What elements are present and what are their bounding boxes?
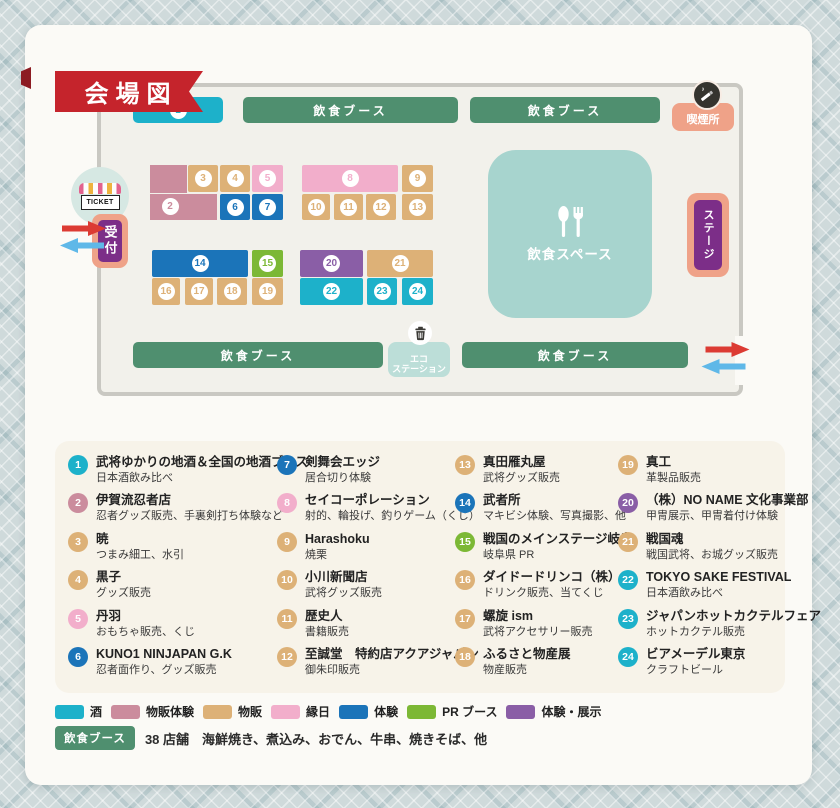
legend-item-name: 剣舞会エッジ <box>305 454 480 470</box>
legend-item-name: Harashoku <box>305 531 480 547</box>
legend-item-number: 9 <box>277 532 297 552</box>
legend-item-desc: 戦国武将、お城グッズ販売 <box>646 548 821 563</box>
legend-item-name: 至誠堂 特約店アクアジャパン <box>305 646 480 662</box>
legend-item-number: 6 <box>68 647 88 667</box>
legend-item-number: 24 <box>618 647 638 667</box>
category-key-label: 物販体験 <box>146 703 194 720</box>
legend-item-number: 21 <box>618 532 638 552</box>
food-booth-bar: 飲食ブース <box>133 342 383 368</box>
legend-item-desc: ホットカクテル販売 <box>646 625 821 640</box>
map-booth-number: 22 <box>323 283 340 300</box>
eco-station-label-line2: ステーション <box>392 364 446 374</box>
legend-item: 13真田雁丸屋武将グッズ販売 <box>455 454 633 492</box>
legend-column-3: 13真田雁丸屋武将グッズ販売14武者所マキビシ体験、写真撮影、他15戦国のメイン… <box>455 454 633 684</box>
map-booth-number: 2 <box>162 198 179 215</box>
legend-item: 24ビアメーデル東京クラフトビール <box>618 646 821 684</box>
dining-space: 飲食スペース <box>488 150 652 318</box>
map-booth-number: 5 <box>259 170 276 187</box>
cigarette-icon <box>692 80 722 110</box>
category-key-swatch <box>111 705 140 719</box>
entrance-arrow-right-icon <box>62 221 106 236</box>
legend-column-1: 1武将ゆかりの地酒＆全国の地酒ブース日本酒飲み比べ2伊賀流忍者店忍者グッズ販売、… <box>68 454 308 684</box>
legend-item-desc: 物産販売 <box>483 663 633 678</box>
legend-item-name: 歴史人 <box>305 608 480 624</box>
legend-item: 11歴史人書籍販売 <box>277 608 480 646</box>
legend-item: 22TOKYO SAKE FESTIVAL日本酒飲み比べ <box>618 569 821 607</box>
legend-item: 23ジャパンホットカクテルフェアホットカクテル販売 <box>618 608 821 646</box>
map-booth-number: 11 <box>340 199 357 216</box>
legend-item-number: 18 <box>455 647 475 667</box>
ticket-label: TICKET <box>81 195 120 210</box>
eco-station-label-line1: エコ <box>410 354 428 364</box>
legend-item-number: 5 <box>68 609 88 629</box>
stage: ステージ <box>687 193 729 277</box>
category-key-label: 体験 <box>374 703 398 720</box>
legend-item-desc: 居合切り体験 <box>305 471 480 486</box>
legend-item-desc: 岐阜県 PR <box>483 548 633 563</box>
legend-item-desc: 武将グッズ販売 <box>483 471 633 486</box>
legend-item-desc: ドリンク販売、当てくじ <box>483 586 633 601</box>
legend-item: 14武者所マキビシ体験、写真撮影、他 <box>455 492 633 530</box>
eco-station: エコ ステーション <box>388 342 450 377</box>
legend-item-desc: クラフトビール <box>646 663 821 678</box>
food-booth-bar-label: 飲食ブース <box>528 102 602 119</box>
map-booth-number: 12 <box>373 199 390 216</box>
legend-item-desc: 書籍販売 <box>305 625 480 640</box>
category-key: 酒物販体験物販縁日体験PR ブース体験・展示 <box>55 703 611 720</box>
spoon-fork-icon <box>553 205 587 239</box>
legend-item-name: （株）NO NAME 文化事業部 <box>646 492 821 508</box>
legend-item-number: 11 <box>277 609 297 629</box>
exit-arrow-right-icon <box>705 342 750 357</box>
map-booth-number: 19 <box>259 283 276 300</box>
legend-item-number: 14 <box>455 493 475 513</box>
legend-item-name: ふるさと物産展 <box>483 646 633 662</box>
venue-map-page: 会場図 飲食ブース飲食ブース飲食ブース飲食ブース1345678910111213… <box>0 0 840 808</box>
legend-item-number: 2 <box>68 493 88 513</box>
map-booth-number: 4 <box>227 170 244 187</box>
trash-icon <box>408 321 432 345</box>
legend-item-number: 10 <box>277 570 297 590</box>
legend-item: 7剣舞会エッジ居合切り体験 <box>277 454 480 492</box>
legend-column-2: 7剣舞会エッジ居合切り体験8セイコーポレーション射的、輪投げ、釣りゲーム（くじ）… <box>277 454 480 684</box>
category-key-label: 物販 <box>238 703 262 720</box>
legend-item-name: ダイドードリンコ（株） <box>483 569 633 585</box>
map-booth-number: 10 <box>308 199 325 216</box>
legend-item-name: 真田雁丸屋 <box>483 454 633 470</box>
food-booth-bar-label: 飲食ブース <box>313 102 387 119</box>
legend-item-name: TOKYO SAKE FESTIVAL <box>646 569 821 585</box>
map-booth-number: 9 <box>409 170 426 187</box>
map-booth-number: 21 <box>392 255 409 272</box>
legend-item-number: 12 <box>277 647 297 667</box>
category-key-item: 縁日 <box>271 703 330 720</box>
category-key-item: PR ブース <box>407 703 497 720</box>
ribbon-fold <box>21 67 31 89</box>
legend-item-desc: 武将グッズ販売 <box>305 586 480 601</box>
map-booth-2 <box>150 165 187 193</box>
legend-item: 8セイコーポレーション射的、輪投げ、釣りゲーム（くじ） <box>277 492 480 530</box>
legend-item-number: 16 <box>455 570 475 590</box>
map-booth-number: 8 <box>342 170 359 187</box>
legend-item-desc: 射的、輪投げ、釣りゲーム（くじ） <box>305 509 480 524</box>
legend-item-desc: 武将アクセサリー販売 <box>483 625 633 640</box>
map-booth-number: 7 <box>259 199 276 216</box>
legend-item-desc: 革製品販売 <box>646 471 821 486</box>
category-key-swatch <box>203 705 232 719</box>
legend-item: 4黒子グッズ販売 <box>68 569 308 607</box>
page-title-ribbon: 会場図 <box>55 71 203 112</box>
legend-item-desc: 焼栗 <box>305 548 480 563</box>
stage-label: ステージ <box>700 209 716 261</box>
ticket-awning-icon <box>79 183 121 194</box>
category-key-label: 酒 <box>90 703 102 720</box>
legend-item: 6KUNO1 NINJAPAN G.K忍者面作り、グッズ販売 <box>68 646 308 684</box>
category-key-swatch <box>271 705 300 719</box>
legend-item: 17螺旋 ism武将アクセサリー販売 <box>455 608 633 646</box>
legend-item: 15戦国のメインステージ岐阜岐阜県 PR <box>455 531 633 569</box>
legend-item: 12至誠堂 特約店アクアジャパン御朱印販売 <box>277 646 480 684</box>
dining-space-label: 飲食スペース <box>527 243 612 263</box>
legend-item: 10小川新聞店武将グッズ販売 <box>277 569 480 607</box>
food-booth-bar-label: 飲食ブース <box>538 347 612 364</box>
content-card: 会場図 飲食ブース飲食ブース飲食ブース飲食ブース1345678910111213… <box>25 25 812 785</box>
legend-item: 9Harashoku焼栗 <box>277 531 480 569</box>
map-booth-number: 14 <box>192 255 209 272</box>
map-booth-number: 13 <box>409 199 426 216</box>
legend-item-name: 小川新聞店 <box>305 569 480 585</box>
food-booth-bar: 飲食ブース <box>243 97 458 123</box>
food-booth-bar-label: 飲食ブース <box>221 347 295 364</box>
category-key-item: 物販体験 <box>111 703 194 720</box>
category-key-item: 体験・展示 <box>506 703 601 720</box>
map-booth-2 <box>150 194 217 220</box>
category-key-label: 縁日 <box>306 703 330 720</box>
food-booth-bar: 飲食ブース <box>470 97 660 123</box>
legend-item-name: 螺旋 ism <box>483 608 633 624</box>
legend-item-name: 真工 <box>646 454 821 470</box>
legend-item-desc: 日本酒飲み比べ <box>646 586 821 601</box>
legend-item: 18ふるさと物産展物産販売 <box>455 646 633 684</box>
map-booth-number: 16 <box>158 283 175 300</box>
smoking-area-label: 喫煙所 <box>687 111 720 127</box>
legend-item-desc: 御朱印販売 <box>305 663 480 678</box>
legend-item: 5丹羽おもちゃ販売、くじ <box>68 608 308 646</box>
food-booth-note: 飲食ブース 38 店舗 海鮮焼き、煮込み、おでん、牛串、焼きそば、他 <box>55 726 487 750</box>
legend-item: 2伊賀流忍者店忍者グッズ販売、手裏剣打ち体験など <box>68 492 308 530</box>
legend-item-desc: マキビシ体験、写真撮影、他 <box>483 509 633 524</box>
category-key-swatch <box>506 705 535 719</box>
legend-item: 19真工革製品販売 <box>618 454 821 492</box>
page-title: 会場図 <box>85 74 178 109</box>
legend-column-4: 19真工革製品販売20（株）NO NAME 文化事業部甲冑展示、甲冑着付け体験2… <box>618 454 821 684</box>
legend-item-number: 20 <box>618 493 638 513</box>
category-key-swatch <box>339 705 368 719</box>
legend-item: 1武将ゆかりの地酒＆全国の地酒ブース日本酒飲み比べ <box>68 454 308 492</box>
legend-item-number: 3 <box>68 532 88 552</box>
category-key-item: 酒 <box>55 703 102 720</box>
category-key-label: 体験・展示 <box>541 703 601 720</box>
legend-item-number: 4 <box>68 570 88 590</box>
legend-item-desc: 甲冑展示、甲冑着付け体験 <box>646 509 821 524</box>
legend-item-name: セイコーポレーション <box>305 492 480 508</box>
legend-item-name: 戦国のメインステージ岐阜 <box>483 531 633 547</box>
map-booth-number: 6 <box>227 199 244 216</box>
map-booth-number: 17 <box>191 283 208 300</box>
map-booth-number: 3 <box>195 170 212 187</box>
legend-item-number: 22 <box>618 570 638 590</box>
stage-inner: ステージ <box>694 200 722 270</box>
legend-item-number: 17 <box>455 609 475 629</box>
legend-item: 21戦国魂戦国武将、お城グッズ販売 <box>618 531 821 569</box>
legend-item-number: 19 <box>618 455 638 475</box>
food-booth-bar: 飲食ブース <box>462 342 688 368</box>
map-booth-number: 20 <box>323 255 340 272</box>
exit-arrow-left-icon <box>60 238 104 253</box>
legend-item-number: 23 <box>618 609 638 629</box>
map-booth-number: 23 <box>374 283 391 300</box>
map-booth-number: 15 <box>259 255 276 272</box>
category-key-item: 体験 <box>339 703 398 720</box>
legend-item-number: 7 <box>277 455 297 475</box>
legend-item-number: 15 <box>455 532 475 552</box>
category-key-item: 物販 <box>203 703 262 720</box>
legend-item: 20（株）NO NAME 文化事業部甲冑展示、甲冑着付け体験 <box>618 492 821 530</box>
legend-item-number: 1 <box>68 455 88 475</box>
legend-item-name: 武者所 <box>483 492 633 508</box>
category-key-label: PR ブース <box>442 703 497 720</box>
legend-item: 16ダイドードリンコ（株）ドリンク販売、当てくじ <box>455 569 633 607</box>
legend-item-name: ジャパンホットカクテルフェア <box>646 608 821 624</box>
legend-item-name: ビアメーデル東京 <box>646 646 821 662</box>
food-booth-badge: 飲食ブース <box>55 726 135 750</box>
legend-item-number: 13 <box>455 455 475 475</box>
legend-item-number: 8 <box>277 493 297 513</box>
legend-item-name: 戦国魂 <box>646 531 821 547</box>
category-key-swatch <box>407 705 436 719</box>
map-booth-number: 18 <box>224 283 241 300</box>
legend-item: 3暁つまみ細工、水引 <box>68 531 308 569</box>
category-key-swatch <box>55 705 84 719</box>
map-booth-number: 24 <box>409 283 426 300</box>
food-booth-note-text: 38 店舗 海鮮焼き、煮込み、おでん、牛串、焼きそば、他 <box>145 729 487 748</box>
entrance-arrow-left-icon <box>701 359 746 374</box>
